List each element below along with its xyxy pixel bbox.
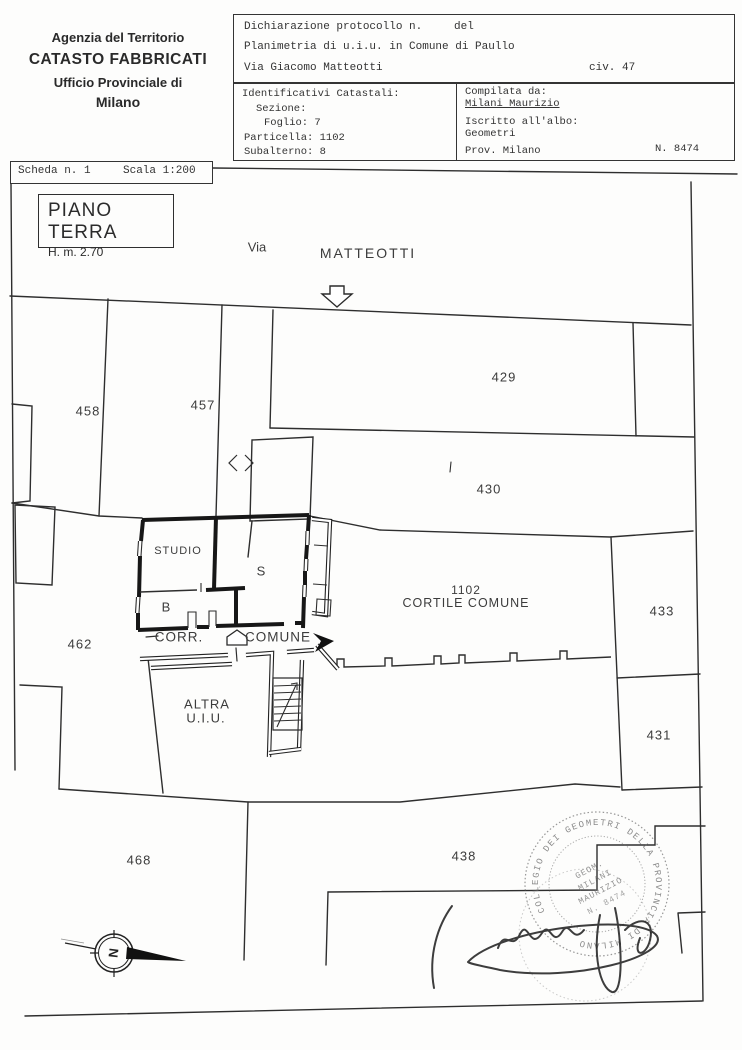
other-unit-label-1: ALTRA [184, 697, 230, 712]
plot-label-431: 431 [647, 728, 672, 743]
room-label-studio: STUDIO [154, 545, 202, 557]
other-unit-label-2: U.I.U. [186, 711, 225, 726]
cadastral-document-page: Agenzia del Territorio CATASTO FABBRICAT… [0, 0, 742, 1050]
plot-label-462: 462 [68, 637, 93, 652]
street-via-label: Via [248, 240, 267, 255]
room-label-b: B [162, 600, 171, 615]
floor-plan-drawing: N COLLEGIO DEI GEOMETRI DELLA PROVINCIA … [0, 0, 742, 1050]
plot-label-429: 429 [492, 370, 517, 385]
plot-label-468: 468 [127, 853, 152, 868]
entrance-pentagon-icon [227, 630, 247, 645]
plot-label-430: 430 [477, 482, 502, 497]
courtyard-fence [337, 651, 611, 668]
gate-diamond-icon [229, 455, 253, 471]
compass-needle [126, 947, 186, 961]
corridor-label-comune: COMUNE [245, 630, 311, 645]
plot-label-457: 457 [191, 398, 216, 413]
plot-label-438: 438 [452, 849, 477, 864]
courtyard-label: CORTILE COMUNE [403, 596, 530, 610]
room-label-s: S [257, 564, 266, 579]
parcel-lines [10, 168, 737, 1016]
stairs [273, 678, 302, 730]
compass-north-letter: N [105, 947, 121, 958]
courtyard-number-label: 1102 [451, 583, 481, 597]
plot-label-458: 458 [76, 404, 101, 419]
street-name-label: MATTEOTTI [320, 245, 416, 261]
signature [432, 906, 658, 992]
north-compass-icon: N [61, 930, 186, 977]
plot-label-433: 433 [650, 604, 675, 619]
corridor-label-corr: CORR. [155, 630, 204, 645]
street-entrance-arrow-icon [322, 286, 352, 307]
